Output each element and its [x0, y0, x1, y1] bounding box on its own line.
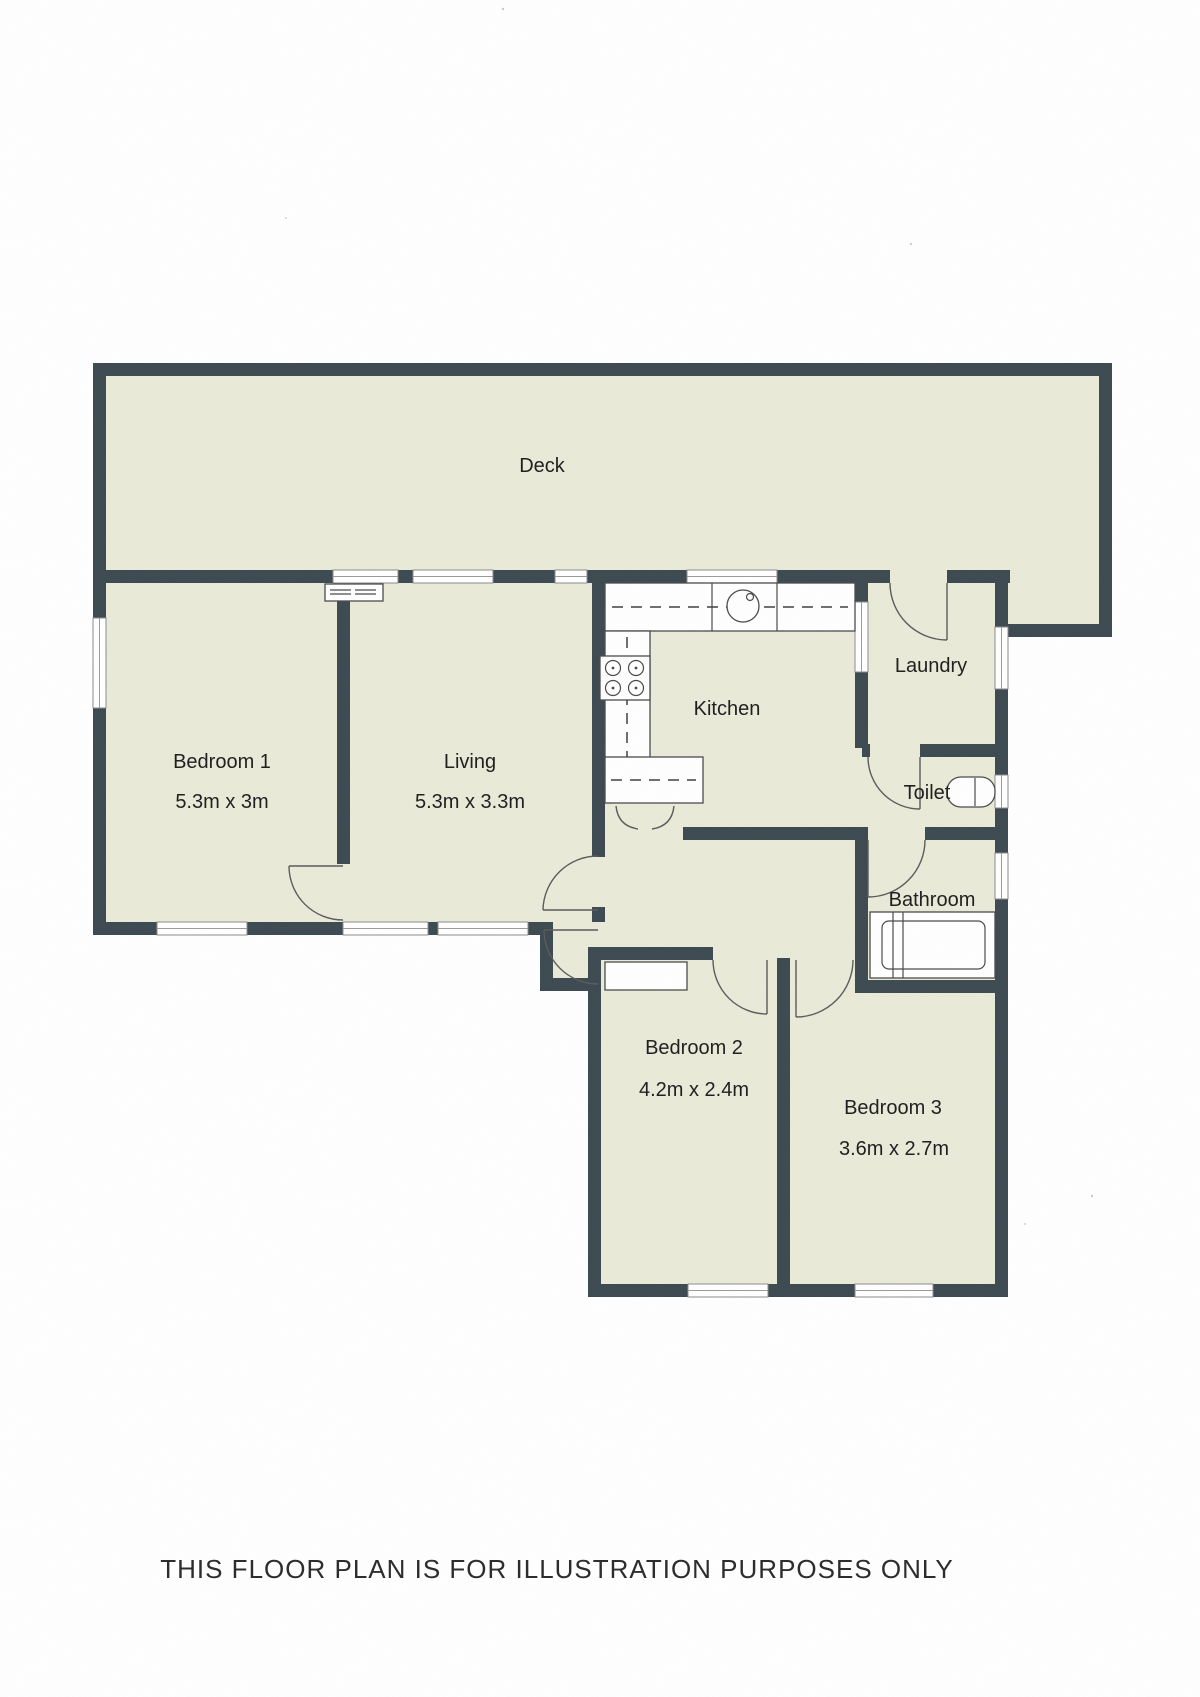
bedroom1-dimensions: 5.3m x 3m — [175, 791, 268, 813]
floor-plan-page: Deck Bedroom 1 5.3m x 3m Living 5.3m x 3… — [0, 0, 1200, 1697]
wall-segment — [1099, 363, 1112, 637]
kitchen-island — [605, 757, 703, 803]
bedroom2-dimensions: 4.2m x 2.4m — [639, 1079, 749, 1101]
wall-segment — [540, 935, 553, 991]
bedroom2-floor — [594, 947, 784, 1290]
living-label: Living — [444, 751, 496, 773]
living-dimensions: 5.3m x 3.3m — [415, 791, 525, 813]
deck-label: Deck — [519, 455, 566, 477]
wall-segment — [855, 980, 1003, 993]
wall-segment — [925, 827, 1003, 840]
wall-segment — [995, 583, 1008, 1297]
wall-segment — [862, 744, 870, 757]
bathroom-label: Bathroom — [889, 889, 976, 911]
toilet-label: Toilet — [904, 782, 951, 804]
kitchen-stove — [600, 656, 650, 700]
wall-segment — [93, 570, 1010, 583]
floor-plan-drawing: Deck Bedroom 1 5.3m x 3m Living 5.3m x 3… — [0, 0, 1200, 1697]
wall-segment — [601, 947, 713, 960]
laundry-label: Laundry — [895, 655, 967, 677]
wall-segment — [592, 583, 605, 857]
wall-segment — [588, 1284, 1008, 1297]
wall-heater — [325, 584, 383, 601]
bedroom2-label: Bedroom 2 — [645, 1037, 743, 1059]
wall-segment — [93, 363, 1112, 376]
wall-segment — [588, 947, 601, 1297]
wall-segment — [592, 907, 605, 922]
wall-segment — [777, 958, 790, 1284]
wall-segment — [683, 827, 868, 840]
wall-segment — [337, 583, 350, 864]
wall-segment — [1008, 624, 1112, 637]
bathtub — [870, 912, 995, 978]
footer-disclaimer: THIS FLOOR PLAN IS FOR ILLUSTRATION PURP… — [160, 1554, 954, 1584]
deck-door-opening — [890, 570, 947, 583]
bedroom3-label: Bedroom 3 — [844, 1097, 942, 1119]
bedroom1-label: Bedroom 1 — [173, 751, 271, 773]
kitchen-label: Kitchen — [694, 698, 761, 720]
bedroom3-dimensions: 3.6m x 2.7m — [839, 1138, 949, 1160]
hallway-floor — [598, 827, 868, 958]
wall-segment — [855, 840, 868, 993]
kitchen-sink — [727, 590, 759, 622]
wardrobe — [605, 962, 687, 990]
wall-segment — [920, 744, 1003, 757]
toilet-pan — [947, 777, 995, 807]
